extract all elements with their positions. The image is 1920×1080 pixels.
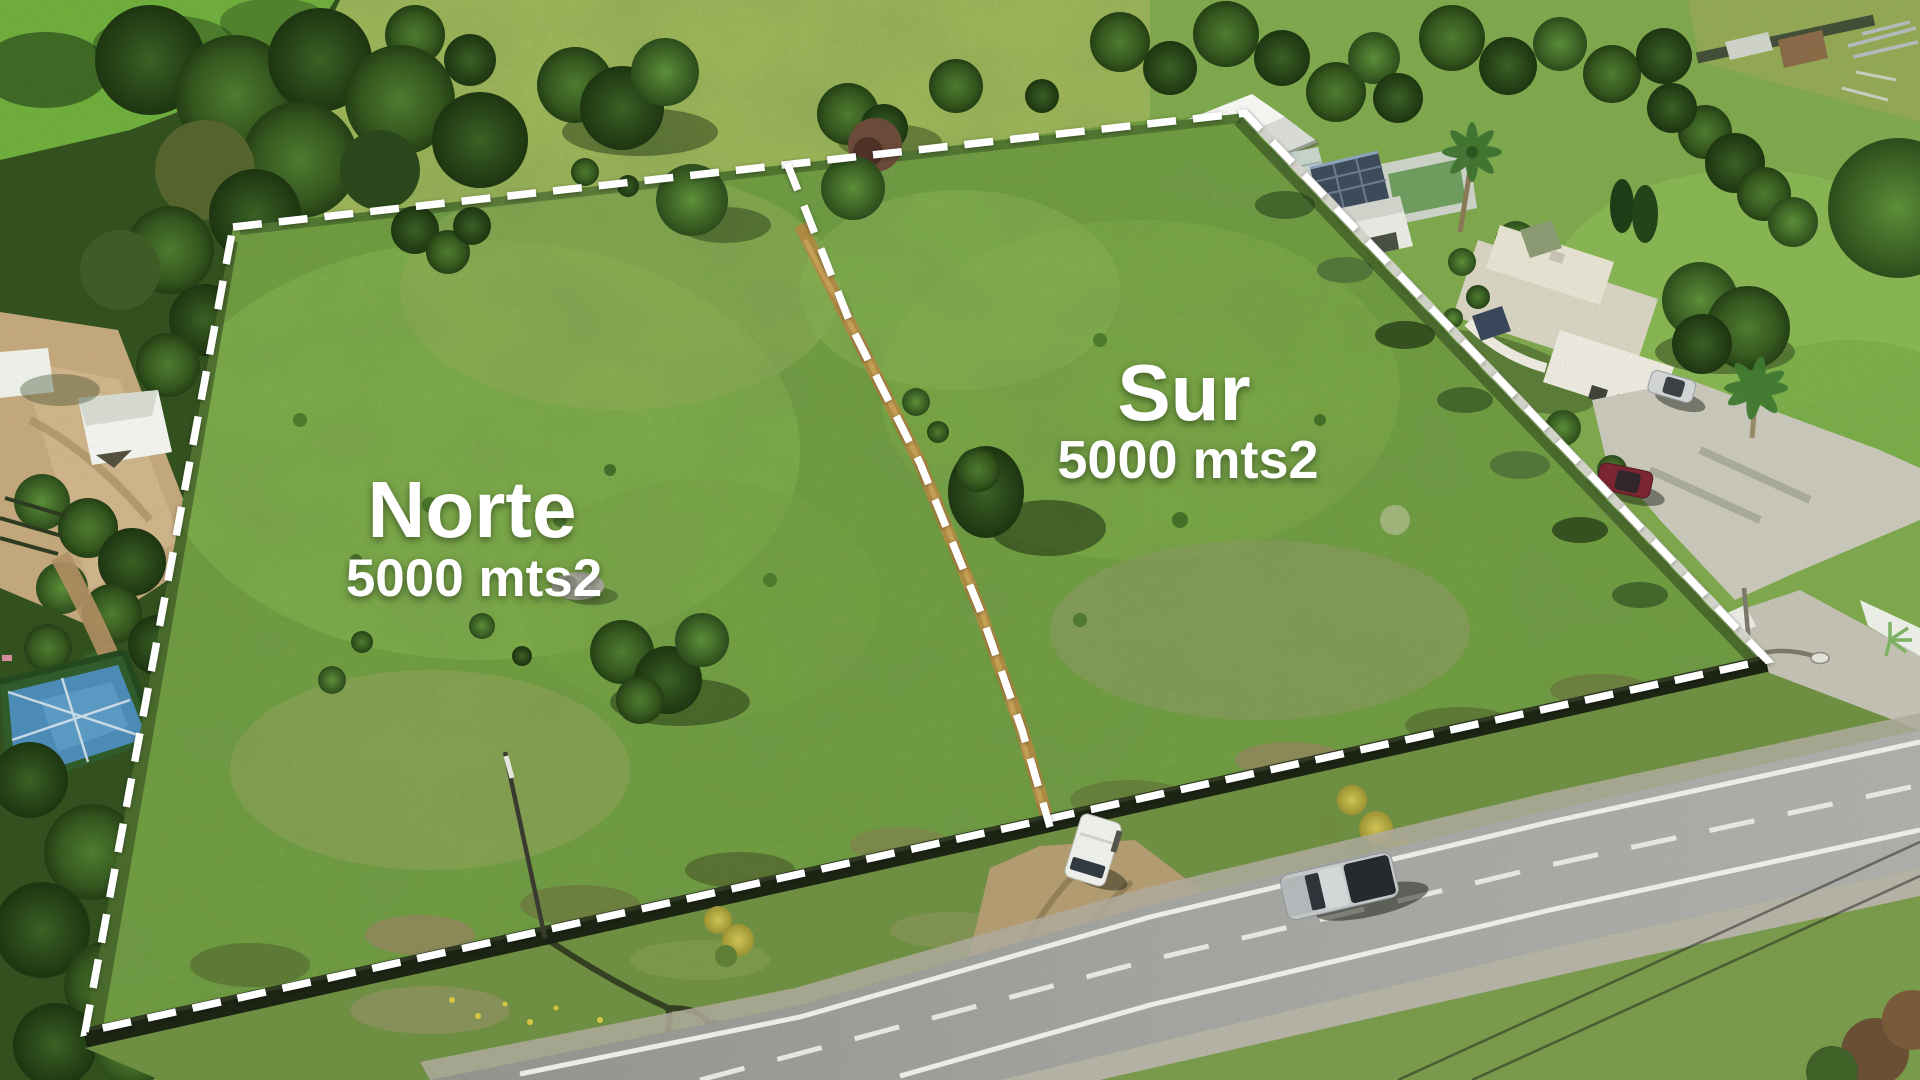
aerial-photo-listing: Norte 5000 mts2 Sur 5000 mts2 <box>0 0 1920 1080</box>
label-norte: Norte <box>368 465 577 554</box>
aerial-photo: Norte 5000 mts2 Sur 5000 mts2 <box>0 0 1920 1080</box>
photo-grain <box>0 0 1920 1080</box>
label-norte-area: 5000 mts2 <box>346 549 602 608</box>
label-sur-area: 5000 mts2 <box>1057 430 1318 490</box>
label-sur: Sur <box>1117 348 1250 437</box>
